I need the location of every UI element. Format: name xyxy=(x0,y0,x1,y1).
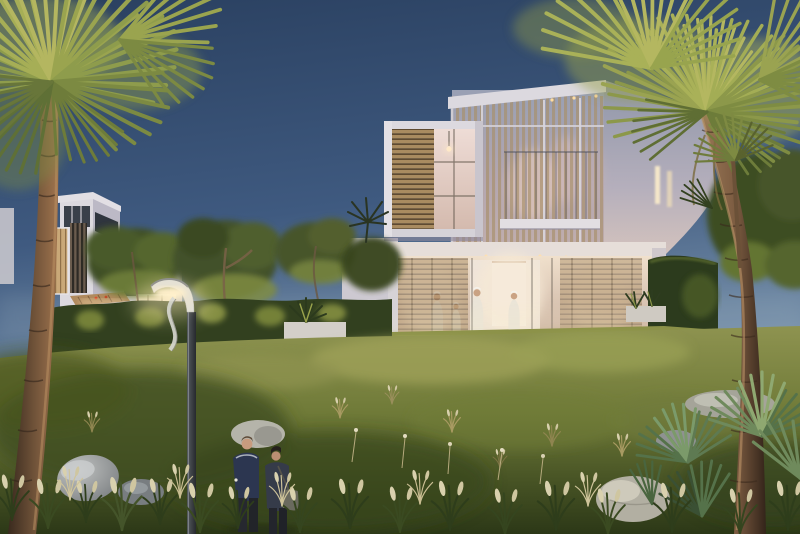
balcony-slab xyxy=(500,219,600,229)
villa-dusk-render xyxy=(0,0,800,534)
rendered-image xyxy=(0,0,800,534)
right-planter-wall xyxy=(626,306,666,322)
framed-glass-box xyxy=(384,121,483,241)
canopy-downlight xyxy=(105,296,108,299)
right-hedge-uplight xyxy=(682,274,718,318)
background-wall-sliver xyxy=(0,208,14,284)
dark-louver-slats xyxy=(70,223,87,293)
tree-behind-villa-corner xyxy=(342,237,402,291)
canopy-downlight xyxy=(95,297,98,300)
mid-band xyxy=(390,242,666,258)
